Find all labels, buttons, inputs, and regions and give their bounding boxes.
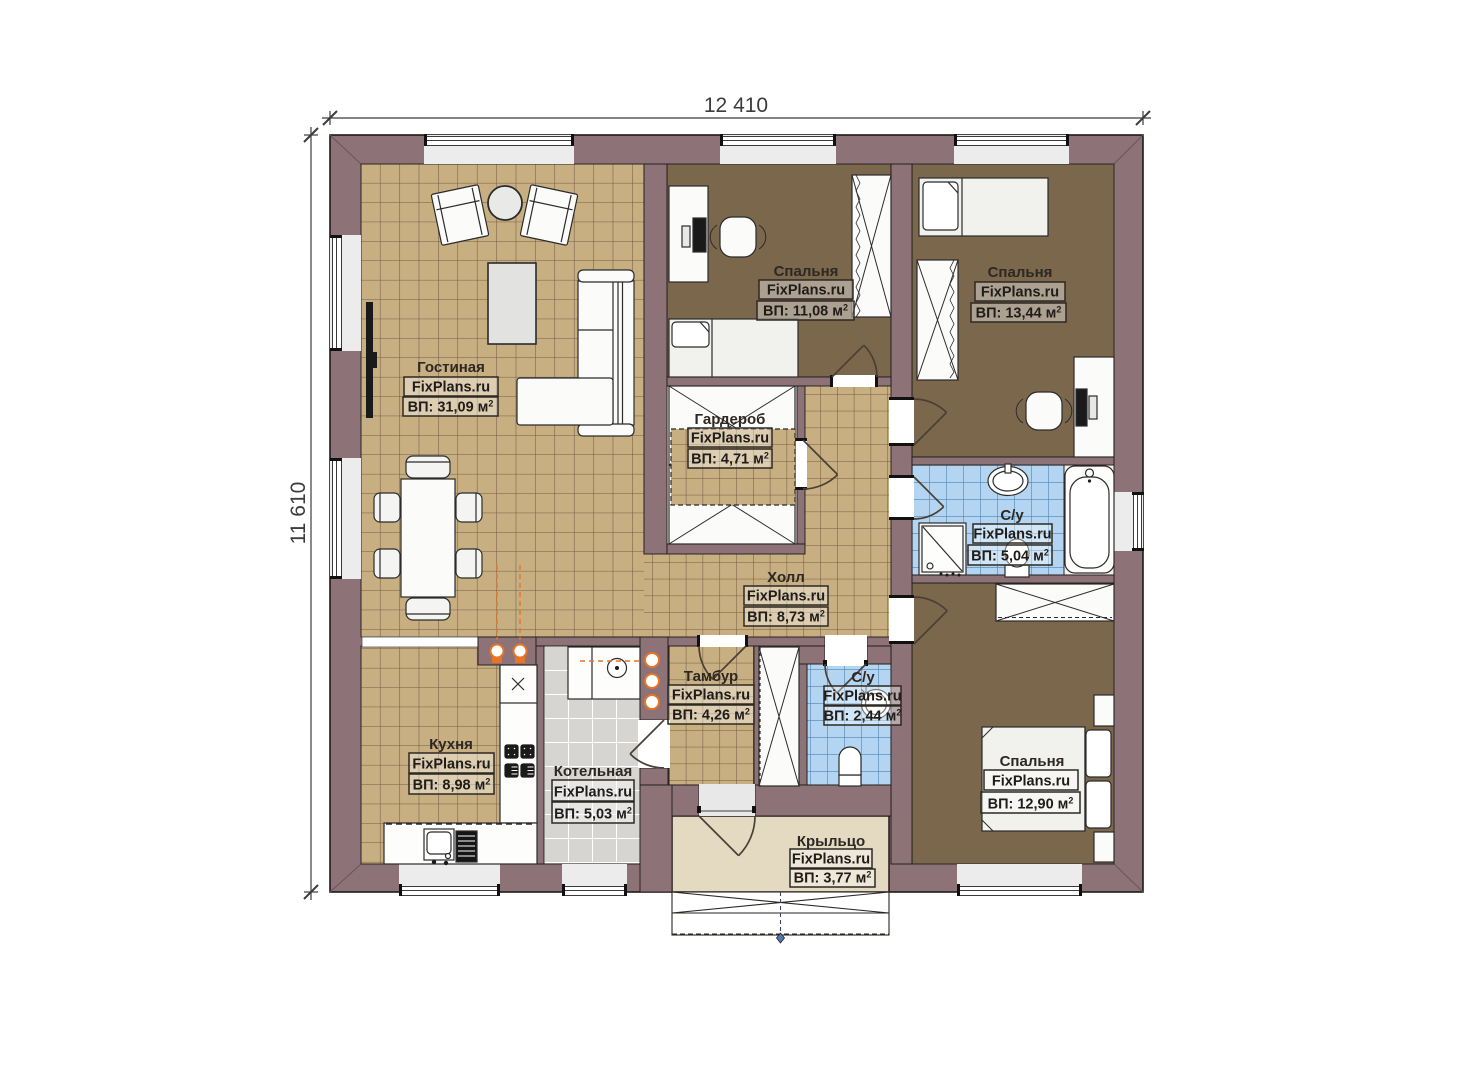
- svg-text:ВП: 13,44 м2: ВП: 13,44 м2: [976, 305, 1062, 322]
- svg-text:FixPlans.ru: FixPlans.ru: [992, 774, 1070, 790]
- svg-text:ВП: 12,90 м2: ВП: 12,90 м2: [988, 796, 1074, 813]
- svg-text:FixPlans.ru: FixPlans.ru: [554, 785, 632, 801]
- svg-text:12 410: 12 410: [704, 94, 768, 117]
- svg-text:ВП: 5,03 м2: ВП: 5,03 м2: [554, 806, 632, 823]
- svg-text:Тамбур: Тамбур: [684, 668, 738, 685]
- svg-text:Котельная: Котельная: [554, 763, 633, 780]
- svg-text:FixPlans.ru: FixPlans.ru: [412, 757, 490, 773]
- svg-text:FixPlans.ru: FixPlans.ru: [691, 431, 769, 447]
- svg-text:С/у: С/у: [851, 669, 875, 686]
- svg-text:ВП: 8,98 м2: ВП: 8,98 м2: [413, 777, 491, 794]
- svg-text:С/у: С/у: [1000, 507, 1024, 524]
- svg-text:FixPlans.ru: FixPlans.ru: [792, 852, 870, 868]
- svg-text:Кухня: Кухня: [429, 736, 473, 753]
- svg-text:Холл: Холл: [767, 569, 805, 586]
- svg-text:Гостиная: Гостиная: [417, 359, 485, 376]
- svg-text:Гардероб: Гардероб: [695, 411, 766, 428]
- svg-text:FixPlans.ru: FixPlans.ru: [412, 380, 490, 396]
- svg-text:ВП: 3,77 м2: ВП: 3,77 м2: [794, 870, 872, 887]
- svg-text:FixPlans.ru: FixPlans.ru: [672, 688, 750, 704]
- svg-text:ВП: 2,44 м2: ВП: 2,44 м2: [824, 708, 902, 725]
- svg-text:ВП: 4,26 м2: ВП: 4,26 м2: [672, 707, 750, 724]
- svg-text:Крыльцо: Крыльцо: [797, 833, 865, 850]
- svg-text:ВП: 31,09 м2: ВП: 31,09 м2: [408, 399, 494, 416]
- svg-text:FixPlans.ru: FixPlans.ru: [823, 689, 901, 705]
- svg-text:FixPlans.ru: FixPlans.ru: [767, 283, 845, 299]
- svg-text:11 610: 11 610: [287, 482, 310, 545]
- svg-text:ВП: 8,73 м2: ВП: 8,73 м2: [747, 609, 825, 626]
- svg-text:FixPlans.ru: FixPlans.ru: [981, 285, 1059, 301]
- svg-text:ВП: 4,71 м2: ВП: 4,71 м2: [691, 451, 769, 468]
- svg-text:FixPlans.ru: FixPlans.ru: [973, 527, 1051, 543]
- svg-text:FixPlans.ru: FixPlans.ru: [747, 589, 825, 605]
- svg-text:Спальня: Спальня: [988, 264, 1053, 281]
- svg-text:Спальня: Спальня: [1000, 753, 1065, 770]
- svg-text:Спальня: Спальня: [774, 263, 839, 280]
- svg-text:ВП: 5,04 м2: ВП: 5,04 м2: [971, 548, 1049, 565]
- svg-text:ВП: 11,08 м2: ВП: 11,08 м2: [763, 303, 848, 320]
